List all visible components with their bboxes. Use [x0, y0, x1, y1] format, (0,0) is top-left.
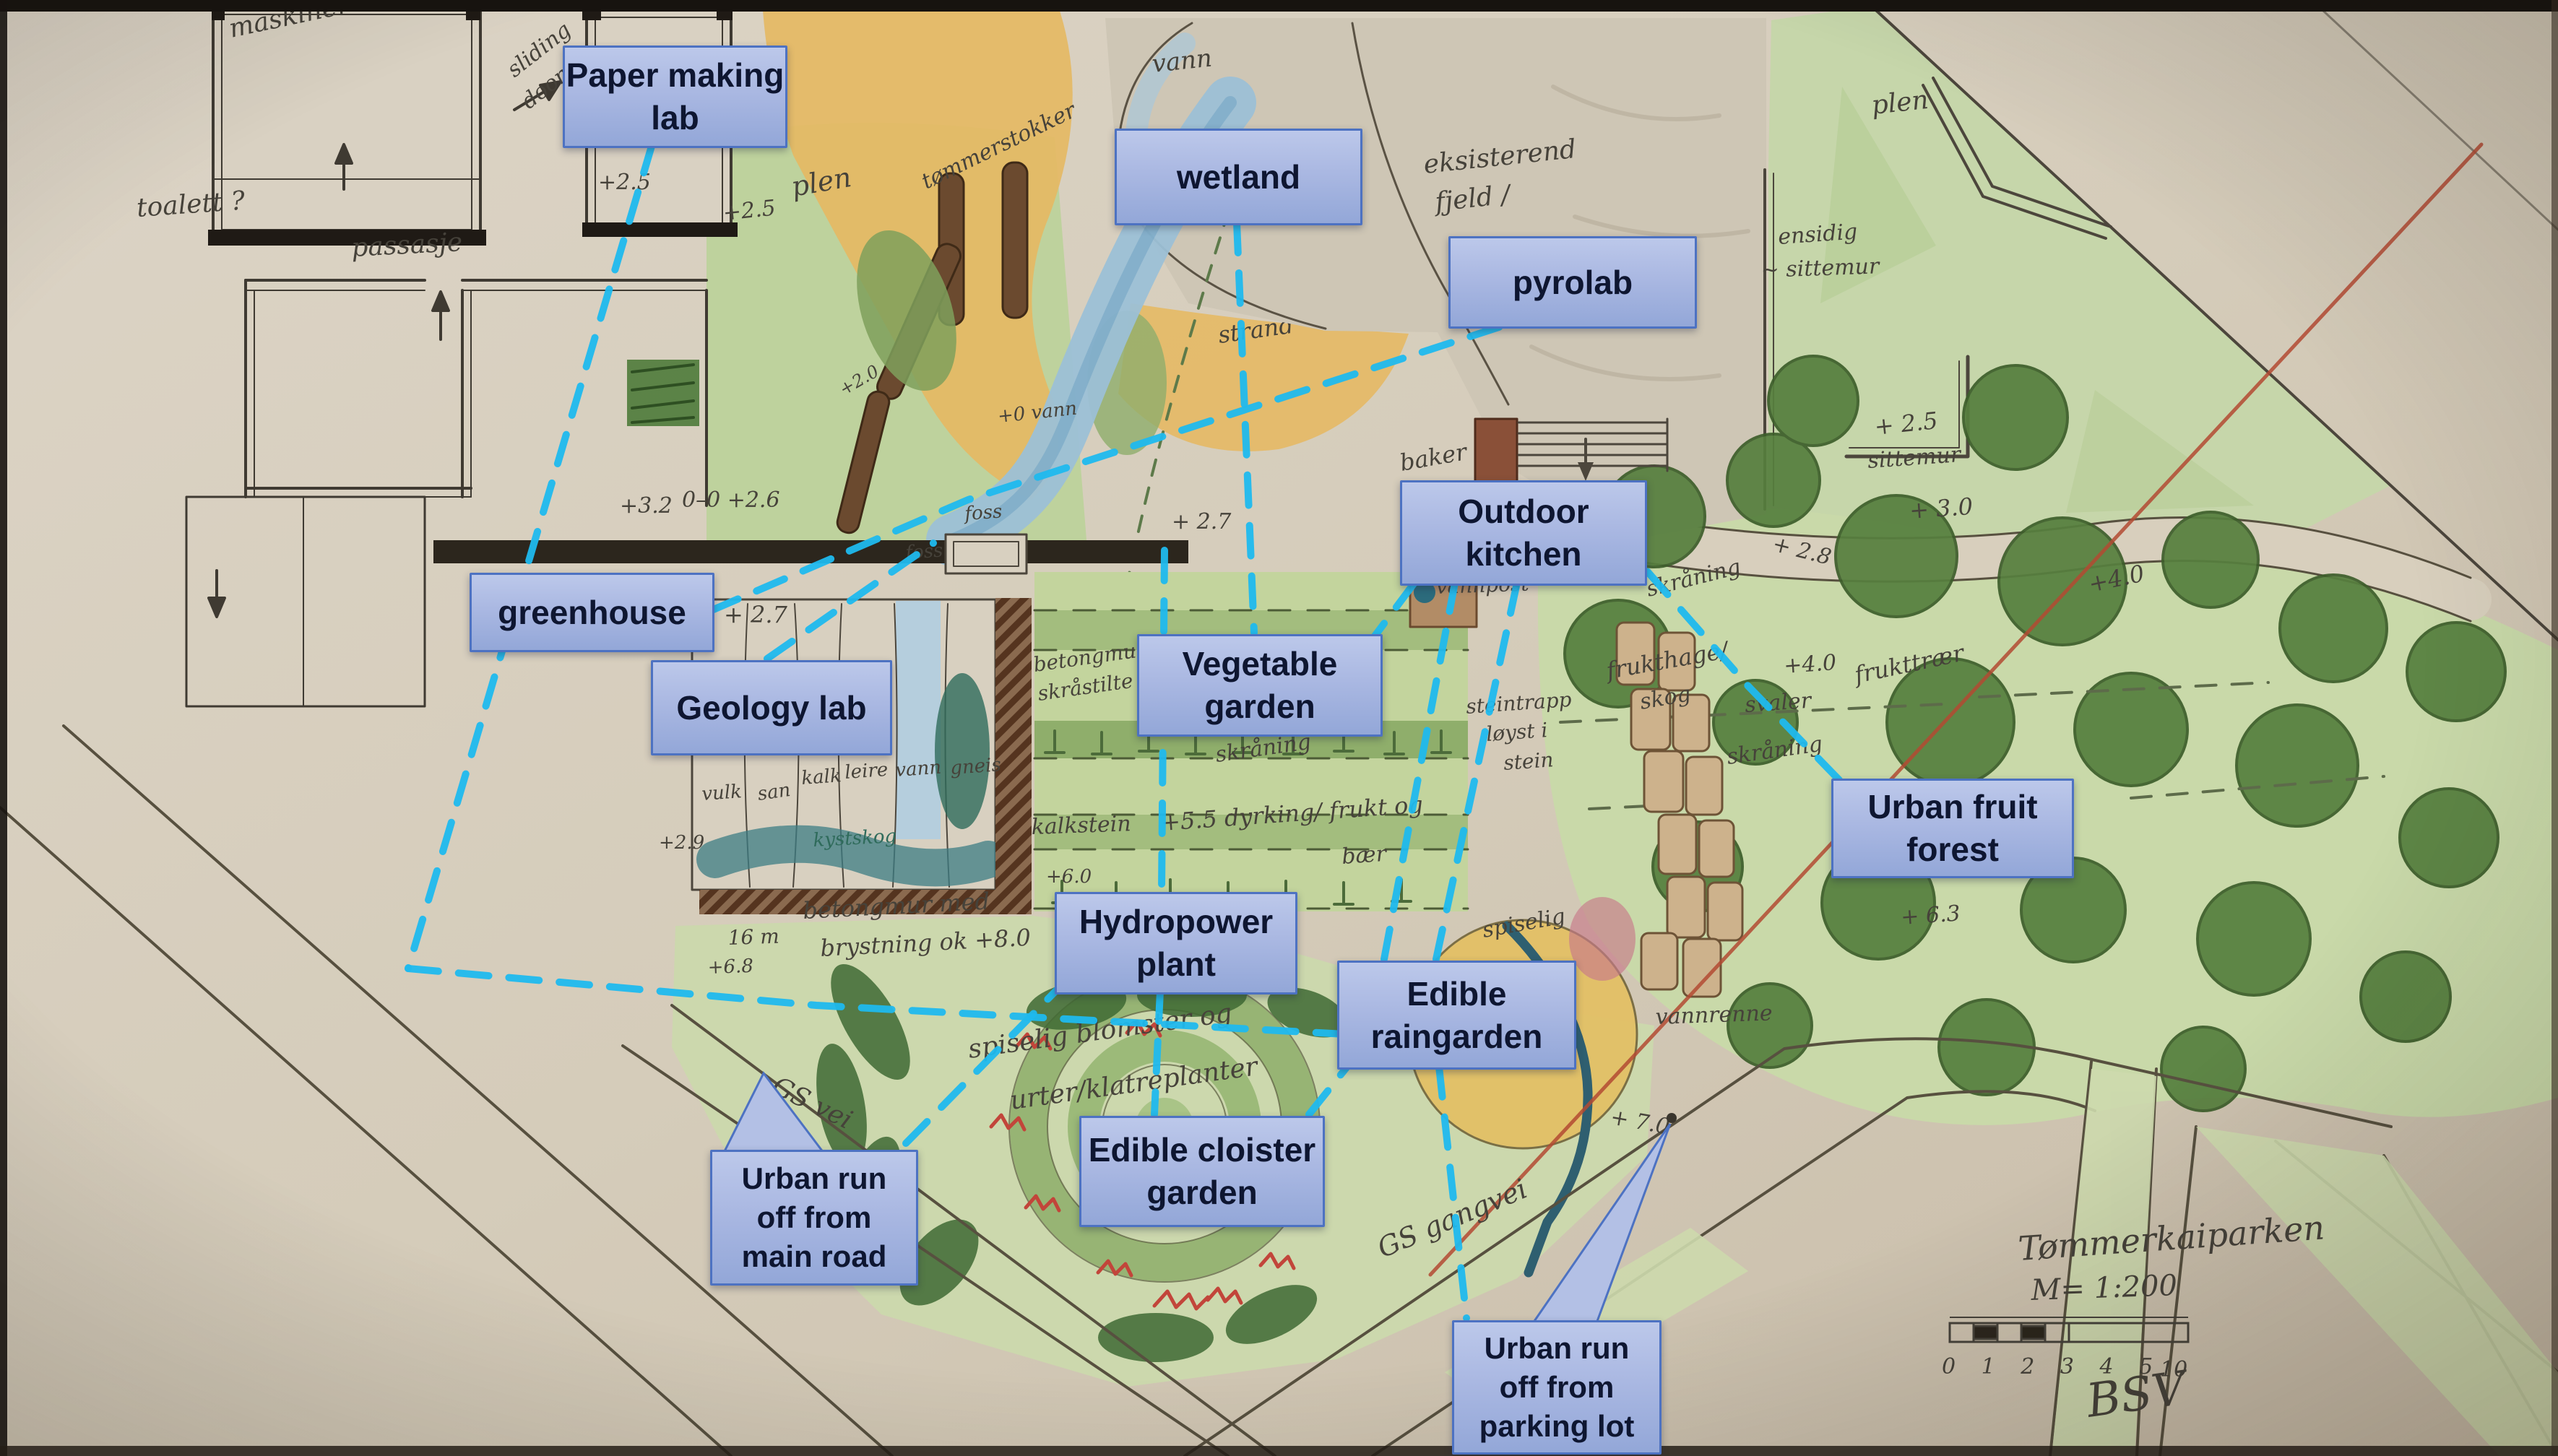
label-paper-making-lab: Paper making lab	[563, 45, 787, 148]
label-vegetable-garden: Vegetable garden	[1137, 634, 1383, 737]
label-outdoor-kitchen: Outdoor kitchen	[1400, 480, 1647, 586]
label-urban-fruit-forest: Urban fruit forest	[1831, 779, 2074, 878]
site-plan-photo: strand	[0, 0, 2558, 1456]
label-greenhouse: greenhouse	[470, 573, 714, 652]
label-wetland: wetland	[1115, 129, 1362, 225]
label-edible-raingarden: Edible raingarden	[1337, 961, 1576, 1070]
label-geology-lab: Geology lab	[651, 660, 892, 755]
label-pyrolab: pyrolab	[1448, 236, 1697, 329]
label-hydropower-plant: Hydropower plant	[1055, 892, 1297, 994]
label-edible-cloister-garden: Edible cloister garden	[1079, 1116, 1325, 1227]
label-urban-runoff-main-road: Urban run off from main road	[710, 1150, 918, 1286]
label-urban-runoff-parking-lot: Urban run off from parking lot	[1452, 1320, 1662, 1455]
